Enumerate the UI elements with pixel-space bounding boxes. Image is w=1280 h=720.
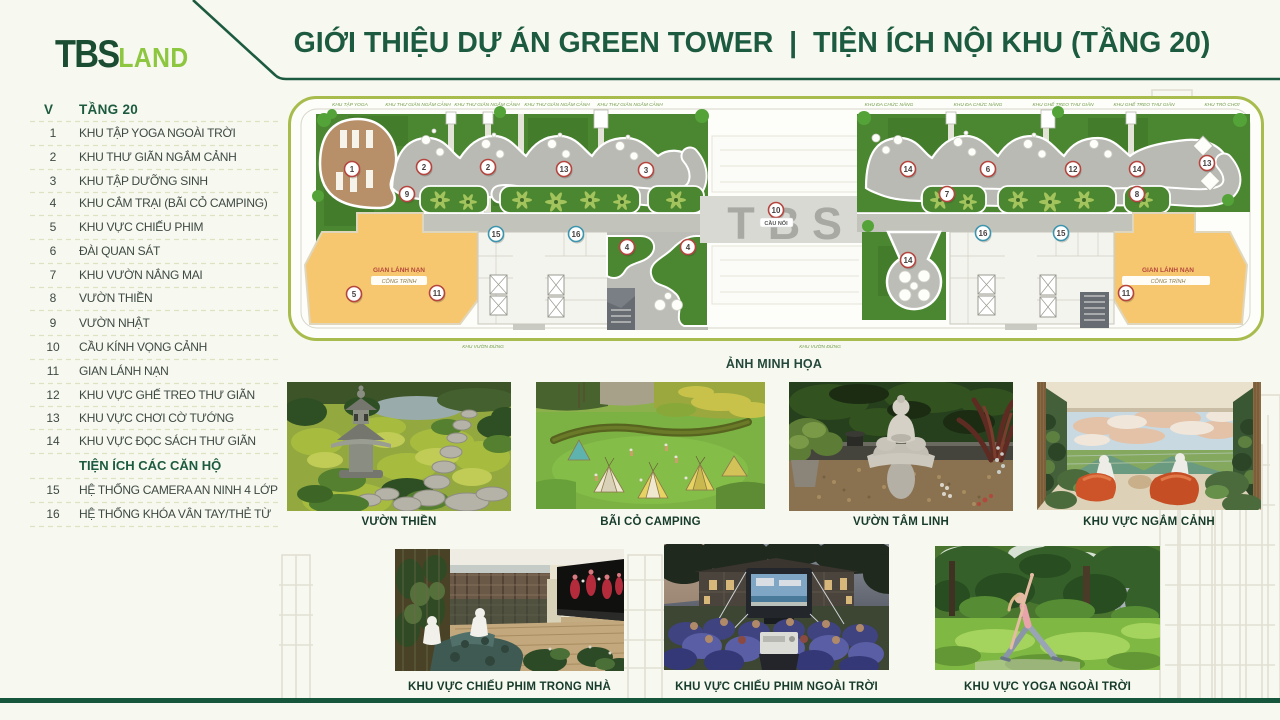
svg-text:CÔNG TRÌNH: CÔNG TRÌNH	[382, 278, 417, 285]
svg-text:KHU TRÒ CHƠI: KHU TRÒ CHƠI	[1204, 101, 1240, 108]
svg-text:16: 16	[979, 229, 988, 238]
svg-text:9: 9	[405, 190, 410, 199]
svg-text:CÔNG TRÌNH: CÔNG TRÌNH	[1151, 278, 1186, 285]
svg-text:CẦU NỐI: CẦU NỐI	[764, 220, 788, 227]
svg-text:KHU VƯỜN ĐỨNG: KHU VƯỜN ĐỨNG	[799, 343, 841, 350]
svg-text:4: 4	[625, 243, 630, 252]
svg-text:KHU VƯỜN ĐỨNG: KHU VƯỜN ĐỨNG	[462, 343, 504, 350]
svg-text:T: T	[727, 198, 755, 249]
svg-text:4: 4	[686, 243, 691, 252]
svg-text:KHU ĐA CHỨC NĂNG: KHU ĐA CHỨC NĂNG	[954, 101, 1003, 108]
svg-text:2: 2	[422, 163, 427, 172]
svg-text:8: 8	[1135, 190, 1140, 199]
svg-text:14: 14	[1133, 165, 1142, 174]
svg-text:7: 7	[945, 190, 950, 199]
svg-text:11: 11	[433, 289, 442, 298]
svg-text:1: 1	[350, 165, 355, 174]
svg-text:GIAN LÁNH NẠN: GIAN LÁNH NẠN	[373, 265, 425, 274]
svg-text:16: 16	[572, 230, 581, 239]
svg-text:13: 13	[560, 165, 569, 174]
svg-text:13: 13	[1203, 159, 1212, 168]
svg-text:GIAN LÁNH NẠN: GIAN LÁNH NẠN	[1142, 265, 1194, 274]
svg-text:12: 12	[1069, 165, 1078, 174]
svg-text:14: 14	[904, 165, 913, 174]
svg-text:KHU ĐA CHỨC NĂNG: KHU ĐA CHỨC NĂNG	[865, 101, 914, 108]
svg-text:6: 6	[986, 165, 991, 174]
svg-text:S: S	[812, 198, 842, 249]
svg-text:15: 15	[492, 230, 501, 239]
svg-text:2: 2	[486, 163, 491, 172]
svg-text:10: 10	[772, 206, 781, 215]
svg-text:3: 3	[644, 166, 649, 175]
svg-text:11: 11	[1122, 289, 1131, 298]
svg-text:15: 15	[1057, 229, 1066, 238]
svg-text:KHU TẬP YOGA: KHU TẬP YOGA	[332, 101, 368, 108]
svg-text:14: 14	[904, 256, 913, 265]
svg-text:5: 5	[352, 290, 357, 299]
